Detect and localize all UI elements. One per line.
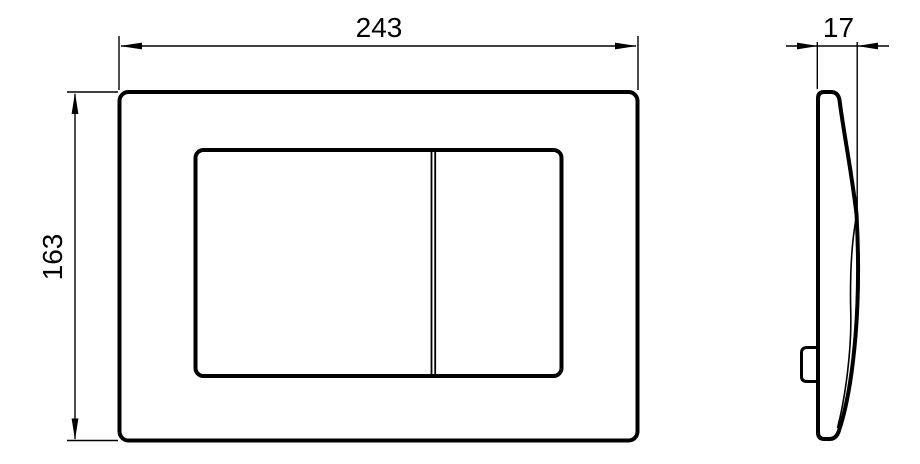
flush-plate-drawing: 243 163 17 [0,0,920,464]
technical-drawing-canvas: 243 163 17 [0,0,920,464]
side-view [802,92,859,439]
arrowhead-inward-left-icon [797,43,818,50]
mounting-clip [802,348,819,382]
width-dimension: 243 [119,12,638,90]
arrowhead-inward-right-icon [857,43,878,50]
arrowhead-left-icon [120,43,142,50]
side-profile-outline [818,92,858,439]
button-recess-outline [196,150,562,376]
height-dimension-label: 163 [37,234,68,281]
arrowhead-down-icon [72,419,79,441]
arrowhead-up-icon [72,93,79,115]
width-dimension-label: 243 [356,12,403,43]
height-dimension: 163 [37,92,118,441]
arrowhead-right-icon [615,43,637,50]
front-view [120,92,638,441]
thickness-dimension-label: 17 [823,12,854,43]
